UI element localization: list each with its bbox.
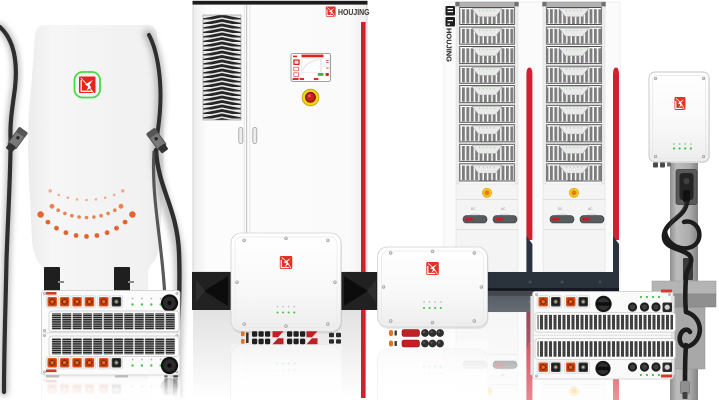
svg-text:HOUJING: HOUJING bbox=[445, 28, 454, 62]
svg-text:HOUJING: HOUJING bbox=[338, 7, 370, 17]
svg-text:DC: DC bbox=[471, 207, 476, 211]
svg-text:AC: AC bbox=[588, 207, 593, 211]
svg-text:AC: AC bbox=[501, 207, 506, 211]
svg-text:DC: DC bbox=[558, 207, 563, 211]
